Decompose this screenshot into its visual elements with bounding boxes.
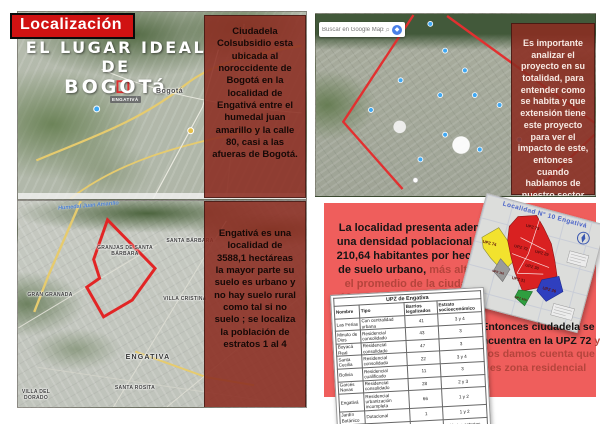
density-panel: La localidad presenta además una densida… — [324, 203, 596, 397]
neighborhood-label: VILLA DEL DORADO — [19, 389, 53, 401]
search-icon: ⌕ — [386, 26, 390, 34]
maps-search-box[interactable]: ⌕ ◆ — [319, 22, 405, 37]
panel-engativa-text: Engativá es una localidad de 3588,1 hect… — [212, 228, 298, 351]
directions-button[interactable]: ◆ — [392, 25, 402, 35]
district-box-label: ENGATIVÁ — [110, 96, 141, 103]
compass-icon — [576, 231, 590, 245]
slide-localizacion: EL LUGAR IDEAL DE BOGOTá Bogotá ENGATIVÁ… — [0, 0, 600, 424]
neighborhood-label: GRAN GRANADA — [26, 292, 74, 298]
page-title-line2: BOGOTá — [20, 76, 212, 98]
map-bogota-overview: EL LUGAR IDEAL DE BOGOTá Bogotá ENGATIVÁ… — [17, 11, 307, 200]
map-engativa-sector: Humedal Juan Amarillo GRANJAS DE SANTA B… — [17, 200, 307, 408]
panel-ciudadela: Ciudadela Colsubsidio esta ubicada al no… — [204, 15, 306, 198]
photo-markers — [368, 21, 521, 161]
search-input[interactable] — [322, 27, 384, 33]
conclusion-text: Entonces ciudadela se encuentra en la UP… — [474, 321, 600, 376]
upz-table: UPZ de Engativa Nombre Tipo Barrios lega… — [330, 287, 491, 424]
city-label: Bogotá — [156, 88, 183, 96]
panel-ciudadela-text: Ciudadela Colsubsidio esta ubicada al no… — [211, 26, 299, 162]
neighborhood-label: SANTA ROSITA — [110, 385, 160, 391]
page-title: EL LUGAR IDEAL DE BOGOTá — [20, 38, 212, 98]
panel-proyecto: Es importante analizar el proyecto en su… — [511, 23, 595, 195]
neighborhood-label: GRANJAS DE SANTA BÁRBARA — [90, 245, 160, 257]
panel-proyecto-text: Es importante analizar el proyecto en su… — [517, 38, 589, 197]
section-banner: Localización — [10, 13, 135, 39]
map-marker-icon — [94, 106, 100, 112]
pegman-marker-icon — [188, 128, 194, 134]
conclusion-text-black: Entonces ciudadela se encuentra en la UP… — [476, 321, 595, 347]
page-title-line1: EL LUGAR IDEAL DE — [20, 38, 212, 76]
panel-engativa: Engativá es una localidad de 3588,1 hect… — [204, 201, 306, 408]
neighborhood-label: VILLA CRISTINA — [161, 296, 209, 302]
map-ciudadela-satellite: ⌕ ◆ Es importante analizar el proyecto e… — [315, 13, 596, 197]
neighborhood-label: ENGATIVA — [118, 354, 178, 362]
white-marker-icon — [413, 178, 418, 183]
sector-outline-polygon — [87, 220, 155, 317]
